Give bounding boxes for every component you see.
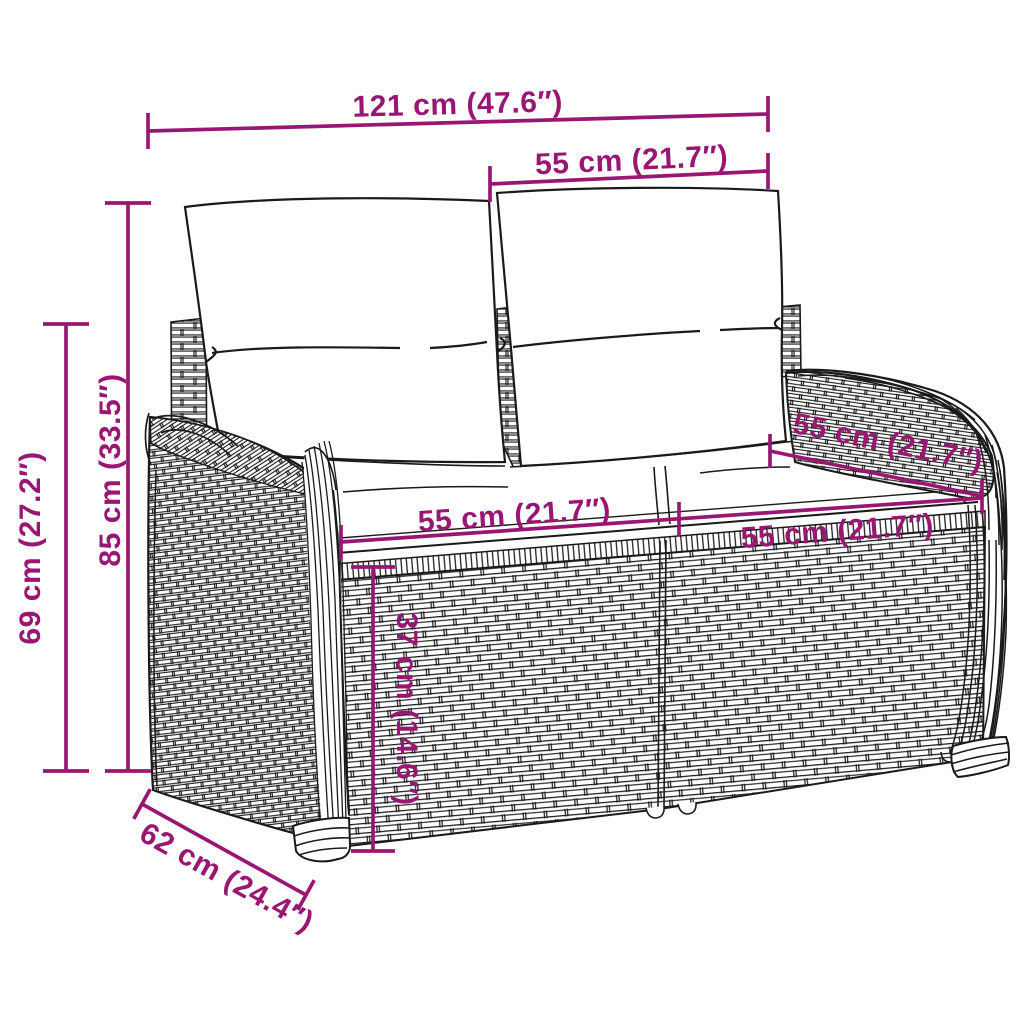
svg-text:121 cm (47.6″): 121 cm (47.6″) [352, 85, 563, 123]
svg-text:37 cm (14.6″): 37 cm (14.6″) [390, 612, 423, 805]
svg-text:69 cm (27.2″): 69 cm (27.2″) [14, 451, 47, 644]
svg-text:85 cm (33.5″): 85 cm (33.5″) [94, 373, 127, 566]
